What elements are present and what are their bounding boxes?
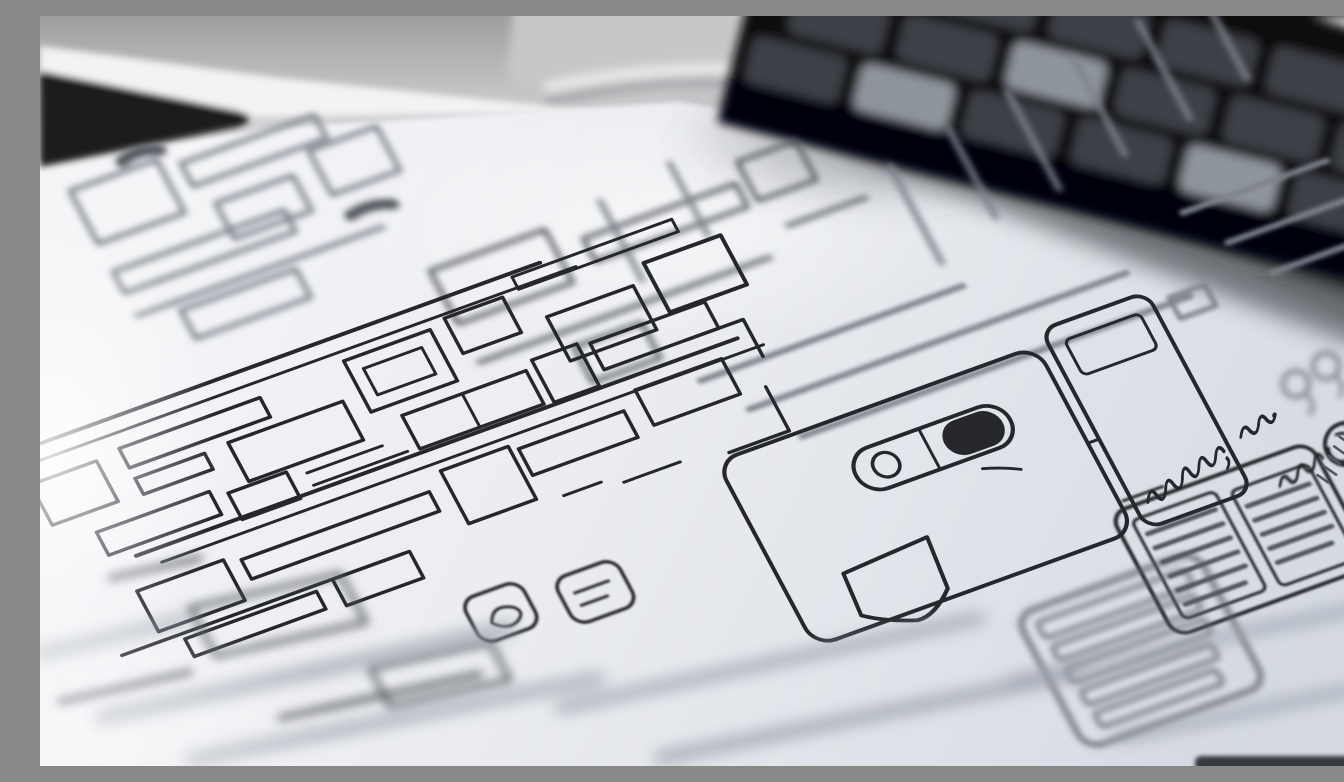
dark-object-corner (1195, 756, 1344, 766)
scene-svg (40, 16, 1344, 766)
photo-wireframe-desk (40, 16, 1344, 766)
